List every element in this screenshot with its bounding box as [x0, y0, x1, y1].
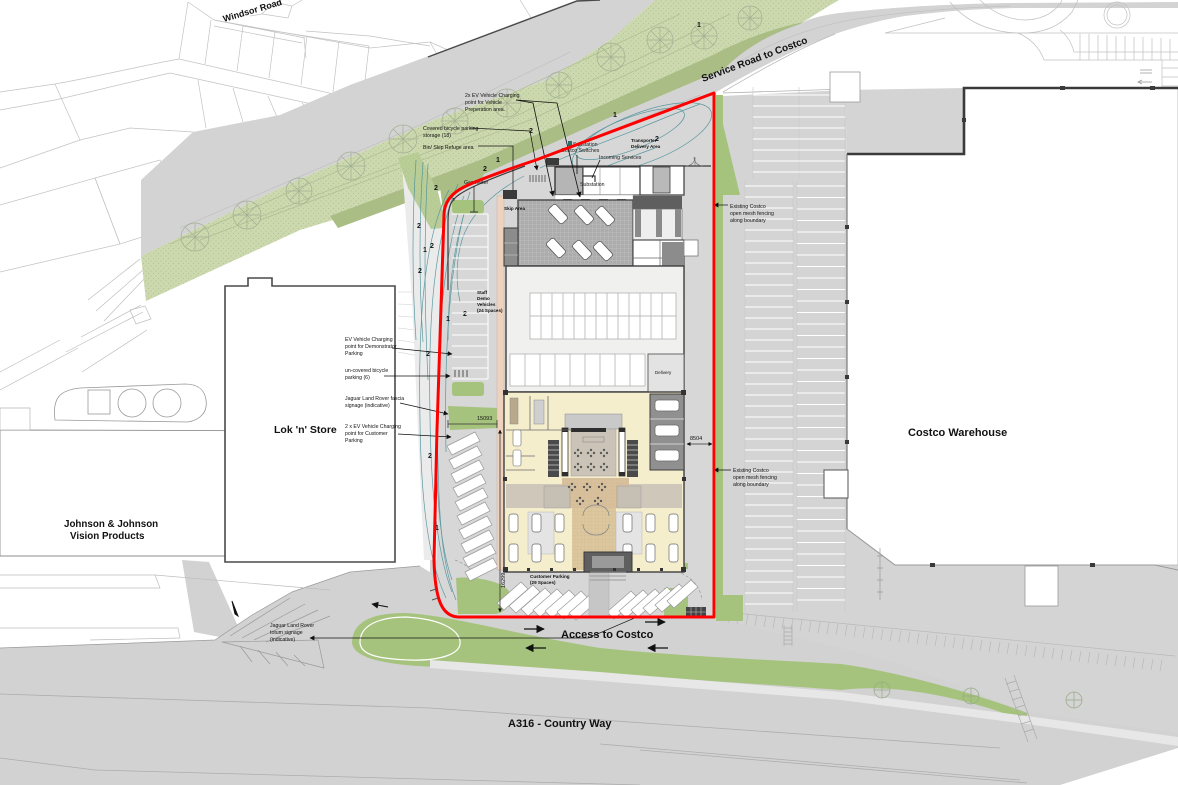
svg-text:A316 - Country Way: A316 - Country Way [508, 718, 612, 730]
svg-text:2: 2 [417, 223, 421, 230]
svg-text:2: 2 [463, 311, 467, 318]
svg-text:along boundary: along boundary [733, 482, 769, 488]
svg-text:1: 1 [446, 316, 450, 323]
svg-text:Bin/ Skip Refuge area: Bin/ Skip Refuge area [423, 145, 474, 151]
svg-text:(29 Spaces): (29 Spaces) [530, 580, 556, 585]
svg-text:Customer Parking: Customer Parking [530, 574, 570, 579]
svg-text:(24 Spaces): (24 Spaces) [477, 308, 503, 313]
svg-text:Incoming Services: Incoming Services [599, 155, 642, 161]
svg-text:2: 2 [529, 128, 533, 135]
svg-text:2x EV Vehicle Charging: 2x EV Vehicle Charging [465, 93, 520, 99]
svg-text:Delivery: Delivery [655, 370, 672, 375]
svg-text:Transporter: Transporter [631, 138, 657, 143]
svg-text:(indicative): (indicative) [270, 637, 295, 643]
svg-text:un-covered bicycle: un-covered bicycle [345, 368, 388, 374]
svg-text:Parking: Parking [345, 351, 363, 357]
svg-text:point for Vehicle: point for Vehicle [465, 100, 502, 106]
svg-text:Skip Area: Skip Area [504, 206, 525, 211]
svg-text:Parking: Parking [345, 438, 363, 444]
svg-text:Vehicles: Vehicles [477, 302, 496, 307]
svg-text:Lok 'n' Store: Lok 'n' Store [274, 424, 337, 436]
svg-text:open mesh fencing: open mesh fencing [730, 211, 774, 217]
svg-text:point for Demonstrator: point for Demonstrator [345, 344, 397, 350]
svg-text:signage (indicative): signage (indicative) [345, 403, 390, 409]
svg-text:Costco Warehouse: Costco Warehouse [908, 427, 1007, 439]
svg-text:Vision Products: Vision Products [70, 531, 145, 542]
svg-text:1: 1 [697, 22, 701, 29]
svg-text:Existing Costco: Existing Costco [730, 204, 766, 210]
svg-text:2: 2 [483, 166, 487, 173]
svg-text:Preperation area.: Preperation area. [465, 107, 505, 113]
svg-text:Substation: Substation [580, 182, 605, 188]
svg-text:1: 1 [496, 157, 500, 164]
svg-text:15093: 15093 [477, 416, 492, 422]
svg-text:1: 1 [613, 112, 617, 119]
svg-text:totum signage: totum signage [270, 630, 303, 636]
svg-text:storage (18): storage (18) [423, 133, 451, 139]
svg-text:Demo: Demo [477, 296, 490, 301]
svg-text:parking (6): parking (6) [345, 375, 370, 381]
svg-text:Jaguar Land Rover fascia: Jaguar Land Rover fascia [345, 396, 404, 402]
svg-text:point for Customer: point for Customer [345, 431, 388, 437]
svg-text:16299: 16299 [501, 573, 507, 588]
svg-text:Covered bicycle parking: Covered bicycle parking [423, 126, 478, 132]
svg-text:Access to Costco: Access to Costco [561, 629, 654, 641]
svg-text:Delivery Area: Delivery Area [631, 144, 661, 149]
svg-text:2: 2 [430, 243, 434, 250]
svg-text:along boundary: along boundary [730, 218, 766, 224]
svg-text:2: 2 [418, 268, 422, 275]
svg-text:1: 1 [423, 247, 427, 254]
svg-text:8504: 8504 [690, 436, 702, 442]
svg-text:Existing Costco: Existing Costco [733, 468, 769, 474]
svg-text:2: 2 [428, 453, 432, 460]
svg-text:open mesh fencing: open mesh fencing [733, 475, 777, 481]
svg-text:EV Vehicle Charging: EV Vehicle Charging [345, 337, 393, 343]
svg-text:Staff: Staff [477, 290, 488, 295]
svg-text:Jaguar Land Rover: Jaguar Land Rover [270, 623, 314, 629]
svg-text:Johnson & Johnson: Johnson & Johnson [64, 519, 158, 530]
svg-text:2: 2 [434, 185, 438, 192]
svg-text:2 x EV Vehicle Charging: 2 x EV Vehicle Charging [345, 424, 401, 430]
